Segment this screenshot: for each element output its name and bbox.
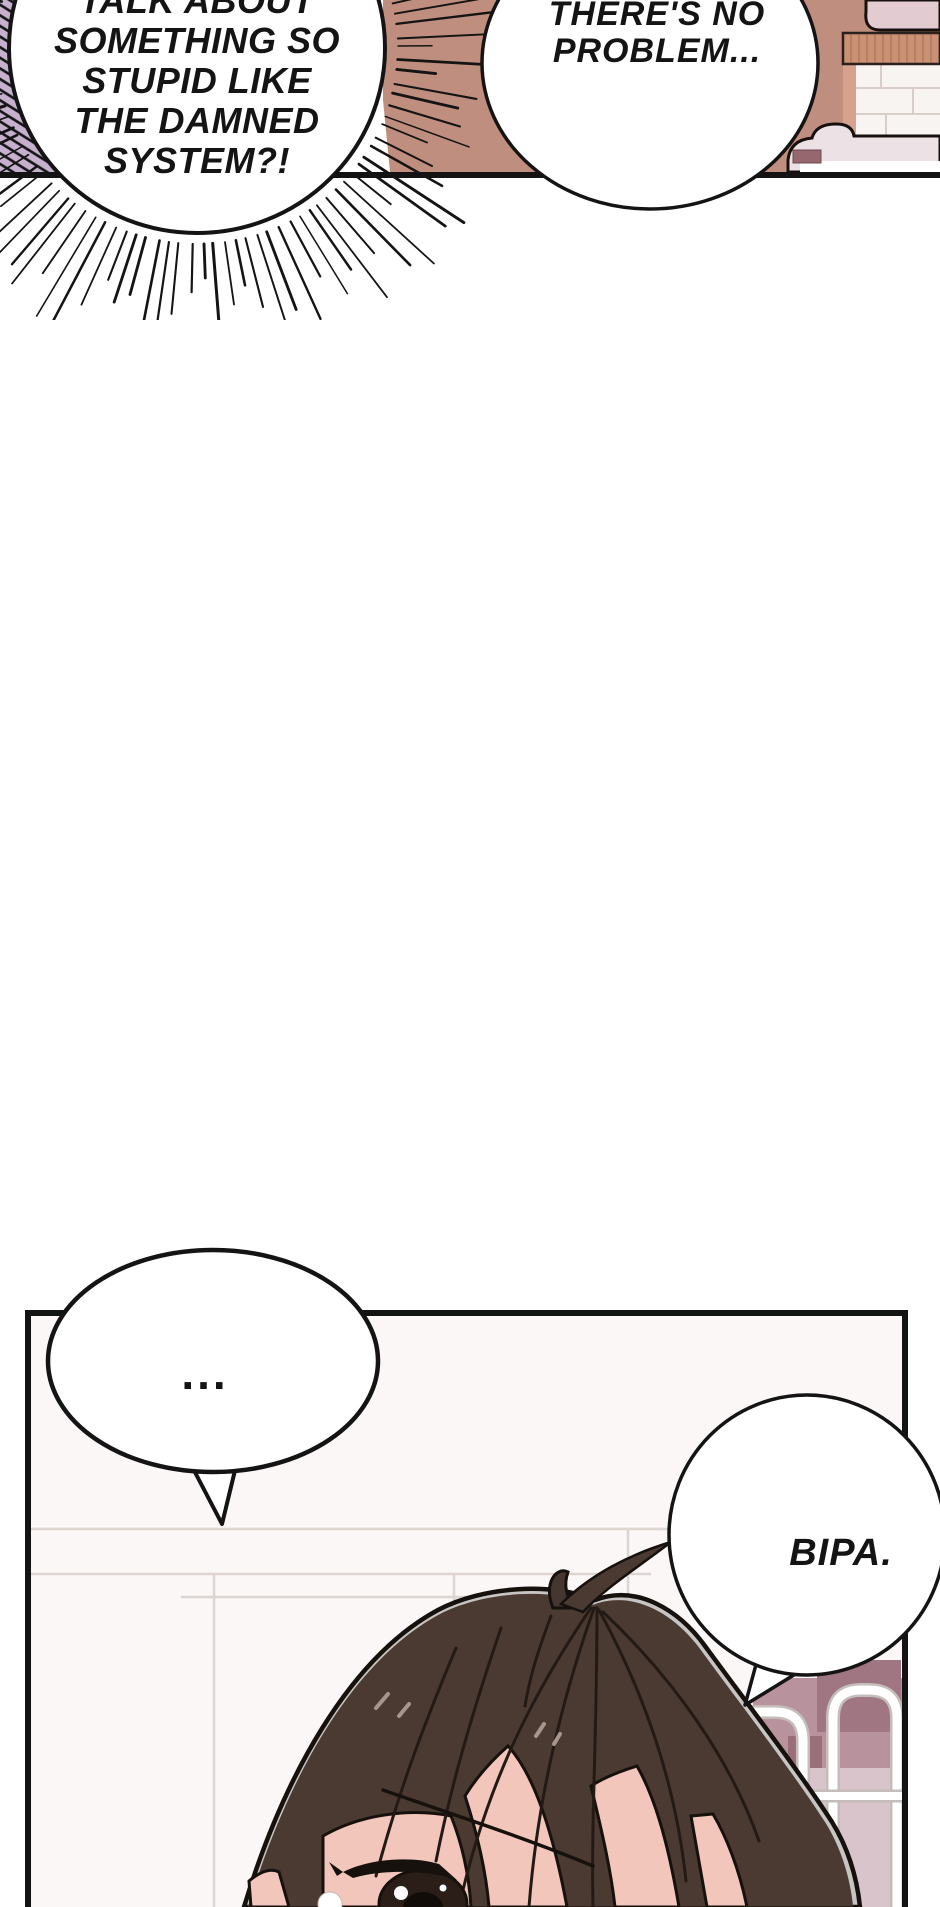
- shout-line: STUPID LIKE: [27, 61, 367, 101]
- bubble-overlay: [0, 0, 940, 1907]
- shout-line: SOMETHING SO: [27, 21, 367, 61]
- name-bubble-text: BIPA.: [741, 1531, 940, 1575]
- webtoon-page: TALK ABOUT SOMETHING SO STUPID LIKE THE …: [0, 0, 940, 1907]
- reply-line: THERE'S NO: [497, 0, 817, 33]
- reply-bubble-text: THERE'S NO PROBLEM...: [497, 0, 817, 70]
- shout-line: TALK ABOUT: [27, 0, 367, 21]
- silence-bubble-text: ...: [125, 1345, 285, 1401]
- shout-bubble-text: TALK ABOUT SOMETHING SO STUPID LIKE THE …: [27, 0, 367, 181]
- reply-line: PROBLEM...: [497, 33, 817, 70]
- shout-line: THE DAMNED: [27, 101, 367, 141]
- shout-line: SYSTEM?!: [27, 141, 367, 181]
